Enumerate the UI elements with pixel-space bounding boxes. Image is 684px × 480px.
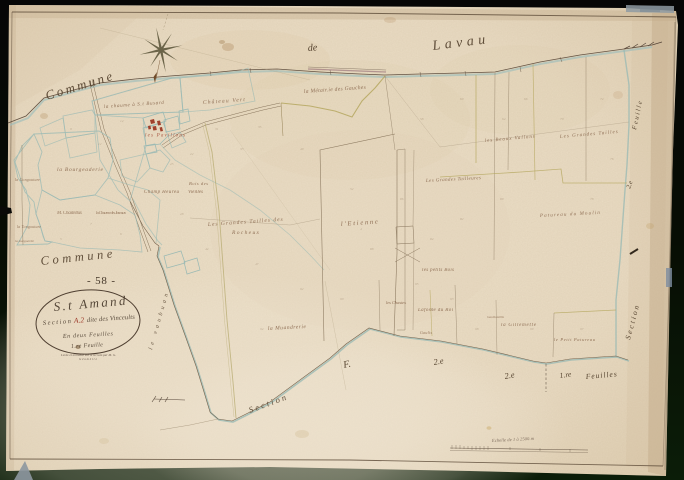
- svg-text:Gaulis taillis: Gaulis taillis: [487, 315, 505, 319]
- svg-text:95: 95: [415, 282, 419, 286]
- svg-text:98: 98: [475, 327, 479, 331]
- svg-text:A.2: A.2: [73, 315, 85, 325]
- svg-text:7: 7: [90, 222, 92, 226]
- svg-text:de: de: [307, 42, 318, 54]
- svg-text:14: 14: [120, 119, 124, 123]
- svg-text:28: 28: [180, 212, 184, 216]
- svg-text:6: 6: [120, 232, 122, 236]
- svg-text:9: 9: [70, 127, 72, 131]
- svg-text:2.e: 2.e: [433, 355, 445, 367]
- svg-text:la marguerite: la marguerite: [15, 239, 34, 243]
- svg-text:74: 74: [600, 97, 604, 101]
- svg-text:78: 78: [590, 197, 594, 201]
- svg-text:Vieilles: Vieilles: [188, 190, 203, 195]
- svg-text:4: 4: [360, 227, 362, 231]
- svg-text:99: 99: [530, 327, 534, 331]
- svg-text:70: 70: [560, 117, 564, 121]
- svg-text:5: 5: [60, 237, 62, 241]
- svg-text:90: 90: [340, 297, 344, 301]
- svg-text:2.e: 2.e: [504, 369, 516, 381]
- svg-text:les Pavillons: les Pavillons: [145, 134, 185, 139]
- svg-text:12: 12: [98, 142, 102, 146]
- svg-text:40: 40: [300, 147, 304, 151]
- svg-text:86: 86: [400, 197, 404, 201]
- svg-text:76: 76: [610, 157, 614, 161]
- svg-text:84: 84: [430, 237, 434, 241]
- svg-text:52: 52: [350, 187, 354, 191]
- svg-text:le Petit Patureau: le Petit Patureau: [554, 337, 596, 342]
- svg-text:44: 44: [205, 247, 209, 251]
- svg-text:64: 64: [502, 117, 506, 121]
- svg-text:Bois des: Bois des: [189, 181, 208, 186]
- svg-text:22: 22: [190, 152, 194, 156]
- svg-text:60: 60: [460, 97, 464, 101]
- svg-text:la Congouture: la Congouture: [15, 177, 40, 182]
- svg-text:Champ Heureu: Champ Heureu: [144, 190, 180, 195]
- svg-text:82: 82: [460, 217, 464, 221]
- svg-text:47: 47: [255, 262, 259, 266]
- svg-text:80: 80: [500, 197, 504, 201]
- svg-text:31: 31: [215, 127, 219, 131]
- svg-text:88: 88: [370, 247, 374, 251]
- svg-text:- 58 -: - 58 -: [87, 275, 115, 287]
- svg-text:les Chastes: les Chastes: [386, 300, 406, 305]
- svg-text:25: 25: [170, 162, 174, 166]
- svg-text:1.re: 1.re: [559, 369, 572, 380]
- svg-text:93: 93: [450, 297, 454, 301]
- svg-text:97: 97: [580, 327, 584, 331]
- svg-text:la Tongouture: la Tongouture: [17, 224, 41, 229]
- svg-text:la Chaume des Javeaux: la Chaume des Javeaux: [96, 210, 126, 215]
- svg-text:33: 33: [240, 147, 244, 151]
- svg-text:les petits Bois: les petits Bois: [422, 268, 454, 273]
- svg-text:35: 35: [258, 125, 262, 129]
- svg-text:66: 66: [524, 97, 528, 101]
- svg-text:96: 96: [430, 307, 434, 311]
- svg-text:Lafosse du Roi: Lafosse du Roi: [417, 308, 454, 313]
- svg-text:92: 92: [300, 287, 304, 291]
- svg-text:M. Chastellux: M. Chastellux: [56, 211, 83, 216]
- svg-text:Géomètre: Géomètre: [79, 357, 98, 361]
- svg-text:Gaulis: Gaulis: [420, 330, 432, 335]
- svg-text:94: 94: [260, 327, 264, 331]
- svg-text:58: 58: [420, 117, 424, 121]
- svg-text:la Bourgeaderie: la Bourgeaderie: [57, 167, 104, 173]
